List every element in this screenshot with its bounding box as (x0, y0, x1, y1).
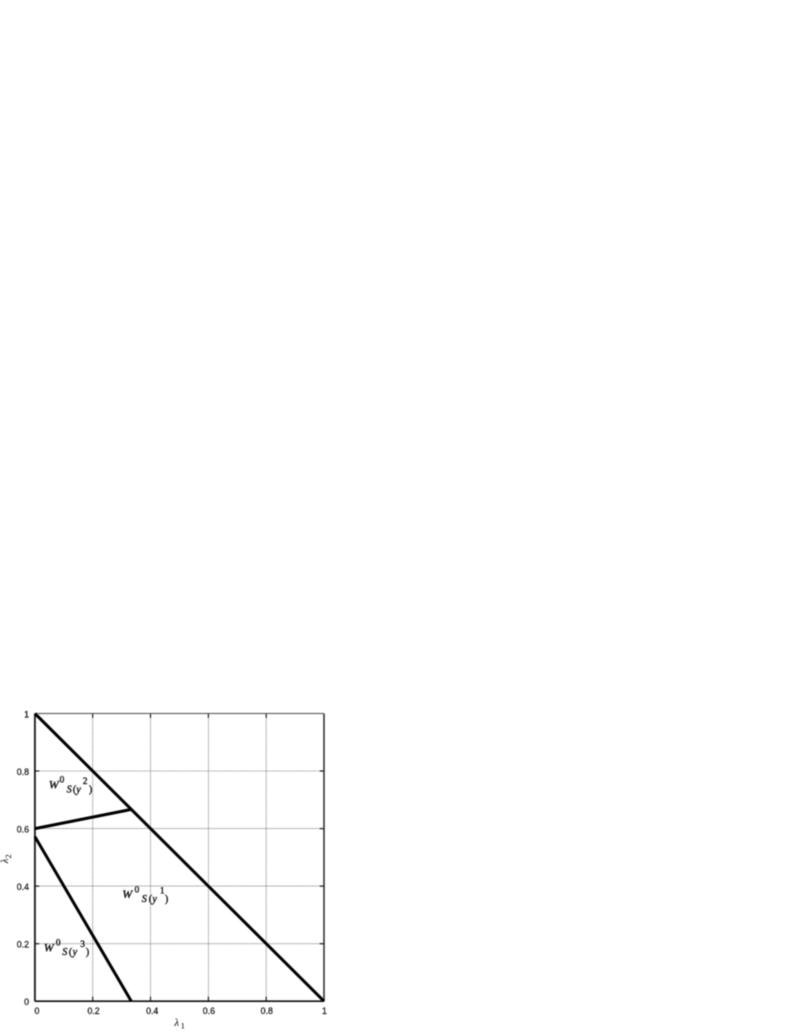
svg-text:λ: λ (173, 1017, 179, 1029)
svg-text:0: 0 (56, 938, 61, 948)
svg-text:0.6: 0.6 (17, 825, 29, 835)
svg-text:): ) (89, 784, 92, 795)
svg-text:): ) (86, 947, 89, 958)
svg-text:0: 0 (35, 1006, 40, 1016)
svg-text:S: S (67, 784, 72, 795)
svg-text:y: y (75, 784, 81, 795)
svg-text:y: y (151, 894, 157, 905)
svg-text:W: W (122, 887, 133, 901)
svg-text:0.8: 0.8 (261, 1006, 273, 1016)
svg-text:1: 1 (322, 1006, 327, 1016)
svg-text:W: W (49, 778, 60, 792)
svg-text:W: W (44, 940, 55, 954)
svg-text:0.4: 0.4 (17, 882, 29, 892)
svg-text:S: S (62, 947, 67, 958)
svg-text:0.4: 0.4 (146, 1006, 158, 1016)
svg-text:): ) (165, 894, 168, 905)
svg-text:0.2: 0.2 (87, 1006, 99, 1016)
svg-text:2: 2 (83, 777, 88, 787)
svg-text:0.2: 0.2 (17, 940, 29, 950)
svg-text:0: 0 (24, 997, 29, 1007)
svg-text:0: 0 (135, 885, 140, 895)
svg-text:3: 3 (80, 940, 85, 950)
svg-text:S: S (142, 894, 147, 905)
svg-text:0: 0 (60, 776, 65, 786)
svg-text:2: 2 (3, 854, 13, 858)
svg-text:1: 1 (24, 709, 29, 719)
svg-text:1: 1 (181, 1021, 185, 1031)
svg-text:0.8: 0.8 (17, 767, 29, 777)
svg-text:0.6: 0.6 (203, 1006, 215, 1016)
svg-text:y: y (72, 947, 78, 958)
